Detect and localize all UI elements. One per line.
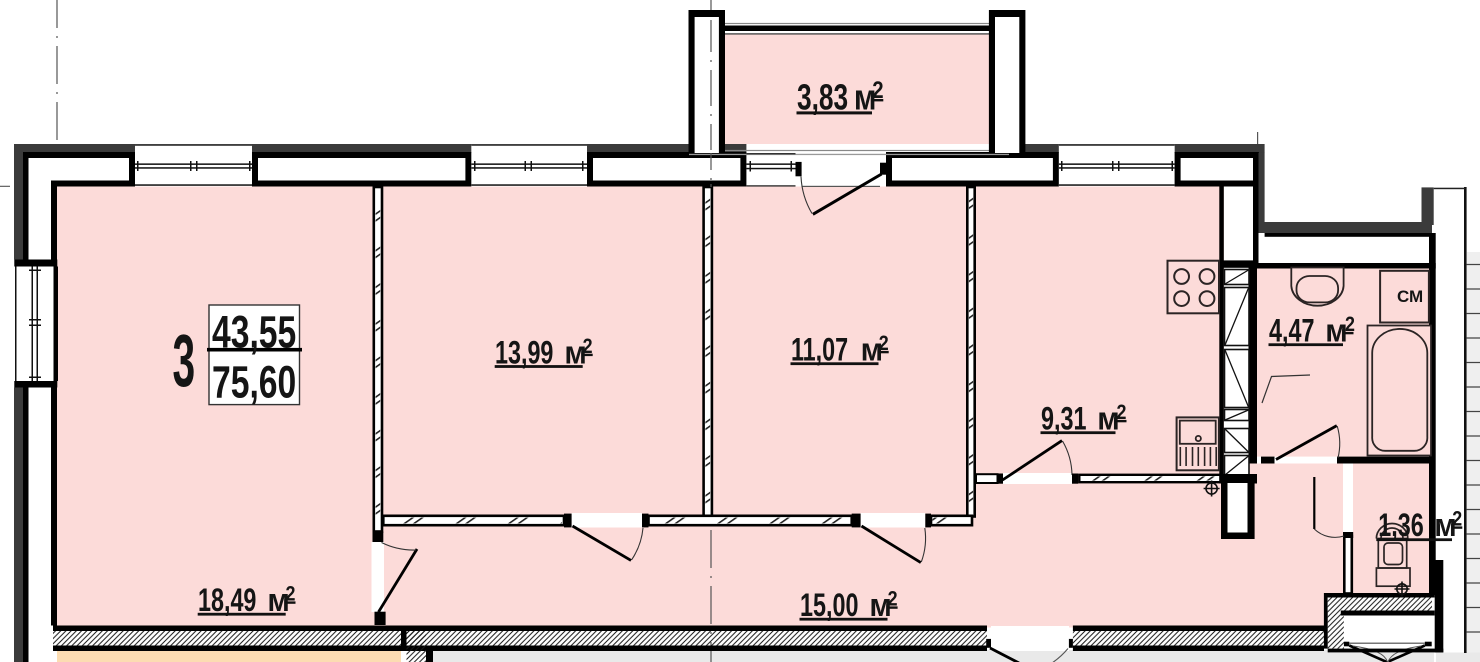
svg-text:3: 3: [173, 319, 196, 402]
svg-text:9,31: 9,31: [1041, 401, 1086, 436]
svg-text:15,00: 15,00: [800, 587, 858, 622]
svg-text:СМ: СМ: [1397, 287, 1423, 306]
svg-text:11,07: 11,07: [791, 332, 848, 367]
svg-text:18,49: 18,49: [198, 582, 256, 617]
svg-text:43,55: 43,55: [212, 308, 296, 358]
svg-text:75,60: 75,60: [212, 358, 296, 408]
svg-text:1,36: 1,36: [1378, 507, 1423, 542]
svg-text:4,47: 4,47: [1269, 313, 1314, 348]
svg-text:3,83: 3,83: [797, 76, 848, 117]
svg-text:13,99: 13,99: [495, 335, 553, 370]
